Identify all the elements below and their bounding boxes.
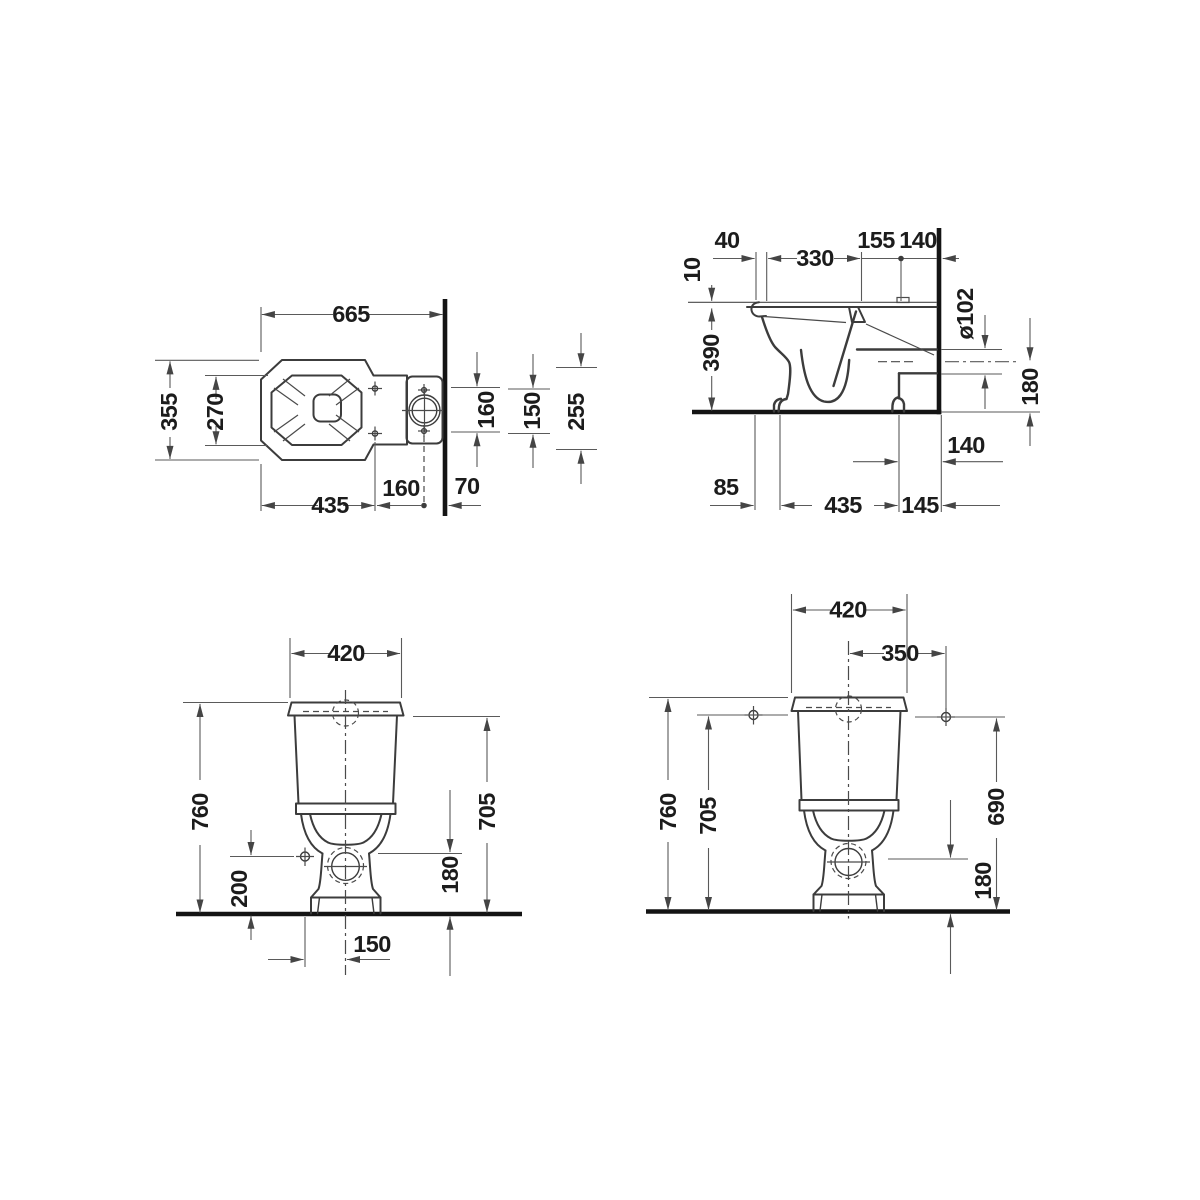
- dim-label-side-seat-depth: 330: [796, 245, 834, 271]
- dim-label-side-rim-height: 390: [698, 334, 724, 372]
- dim-label-side-outlet-height: 180: [1017, 368, 1043, 406]
- dim-label-front-fix-height: 200: [226, 870, 252, 908]
- dim-label-fw-outlet-height: 180: [970, 862, 996, 900]
- chain-dot: [421, 503, 427, 509]
- seat-underside-line: [764, 317, 846, 323]
- dim-label-side-base-length: 435: [824, 492, 862, 518]
- dim-label-front-tank-width: 420: [327, 640, 365, 666]
- dim-label-front-tank-top-height: 705: [474, 793, 500, 831]
- dim-label-side-seat-thickness: 10: [679, 257, 705, 282]
- dim-label-fw-fix-spacing: 350: [881, 640, 919, 666]
- front-wall-view: 420 350 760 705 690 180: [646, 594, 1010, 974]
- dim-label-fw-tank-top-height: 705: [695, 797, 721, 835]
- seat-rear-wedge: [849, 307, 865, 322]
- dim-label-plan-side-extent: 255: [563, 393, 589, 431]
- dim-label-front-fix-offset: 150: [353, 931, 391, 957]
- water-spot: [314, 395, 342, 422]
- dim-label-front-outlet-height: 180: [437, 856, 463, 894]
- dim-label-fw-total-height: 760: [655, 793, 681, 831]
- plan-view: 665 355 270 435 160 70 160: [155, 299, 597, 518]
- dim-label-fw-tank-width: 420: [829, 597, 867, 623]
- seat-front-curl: [751, 302, 766, 316]
- cistern-lid: [792, 698, 908, 712]
- pan-front-outline: [762, 317, 790, 412]
- pan-rear-foot: [898, 398, 904, 412]
- cistern-body: [798, 711, 901, 800]
- dim-label-side-foot-front: 85: [714, 474, 739, 500]
- flush-pipe-icon: [402, 384, 443, 437]
- technical-drawing-page: 665 355 270 435 160 70 160: [0, 0, 1200, 1200]
- dim-label-plan-width: 665: [332, 301, 370, 327]
- front-view: 420 760 705 200 180 150: [176, 638, 522, 976]
- dim-label-plan-fix-b: 150: [519, 392, 545, 430]
- dim-label-plan-inner-depth: 270: [202, 393, 228, 431]
- toilet-dimension-drawing: 665 355 270 435 160 70 160: [0, 0, 1200, 1200]
- dim-label-fw-fix-height: 690: [983, 788, 1009, 826]
- dim-label-front-total-height: 760: [187, 793, 213, 831]
- dim-label-plan-bowl-length: 435: [311, 492, 349, 518]
- dim-label-side-base-wall: 145: [901, 492, 939, 518]
- side-view: 40 330 155 140 10 390 ø102 180: [679, 227, 1043, 518]
- dim-label-side-outlet-wall: 140: [947, 432, 985, 458]
- dim-label-plan-depth: 355: [156, 393, 182, 431]
- dim-label-side-outlet-dia: ø102: [952, 288, 978, 340]
- bowl-inner-rim: [272, 376, 362, 446]
- dim-label-plan-wall-offset: 70: [455, 473, 480, 499]
- seat-fixing-hole-icon: [368, 382, 382, 441]
- front-dimensions: 420 760 705 200 180 150: [183, 638, 500, 976]
- dim-label-side-hinge-offset: 155: [857, 227, 895, 253]
- bowl-spokes: [274, 379, 359, 441]
- plan-dimensions: 665 355 270 435 160 70 160: [155, 301, 597, 518]
- side-fixing-hole-icon: [296, 848, 314, 867]
- dim-label-side-hinge-wall: 140: [899, 227, 937, 253]
- dim-label-side-front-edge: 40: [715, 227, 740, 253]
- side-dimensions: 40 330 155 140 10 390 ø102 180: [679, 227, 1043, 518]
- dim-label-plan-fix-a: 160: [473, 391, 499, 429]
- dim-label-plan-flush-offset: 160: [382, 475, 420, 501]
- pan-rear-edge: [892, 373, 899, 411]
- front-wall-dimensions: 420 350 760 705 690 180: [649, 594, 1009, 974]
